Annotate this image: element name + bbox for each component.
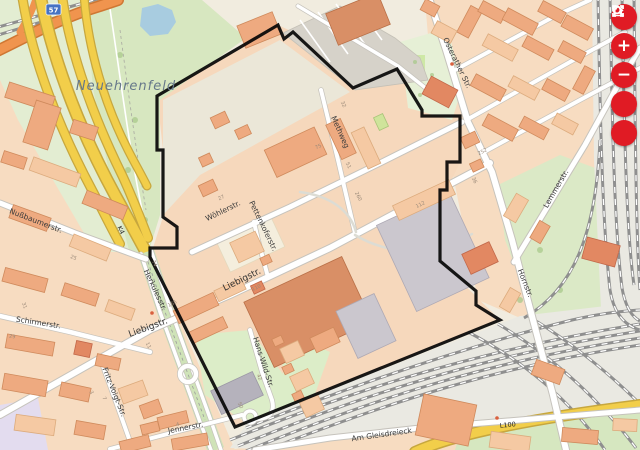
- minus-icon: −: [617, 67, 631, 84]
- map-controls: + −: [611, 4, 637, 146]
- zoom-in-button[interactable]: +: [611, 33, 637, 59]
- home-button[interactable]: [611, 120, 637, 146]
- plus-icon: +: [617, 38, 631, 55]
- map-viewport[interactable]: Neuehrenfeld Wöhlerstr. Pettenkoferstr. …: [0, 0, 640, 450]
- search-button[interactable]: [611, 91, 637, 117]
- place-label-neuehrenfeld: Neuehrenfeld: [76, 79, 176, 94]
- map-canvas[interactable]: Neuehrenfeld Wöhlerstr. Pettenkoferstr. …: [0, 0, 640, 450]
- motorway-shield: 57: [46, 4, 61, 15]
- svg-text:57: 57: [49, 7, 59, 15]
- road-ref-l100: L100: [499, 420, 516, 430]
- zoom-out-button[interactable]: −: [611, 62, 637, 88]
- svg-text:29: 29: [9, 334, 16, 341]
